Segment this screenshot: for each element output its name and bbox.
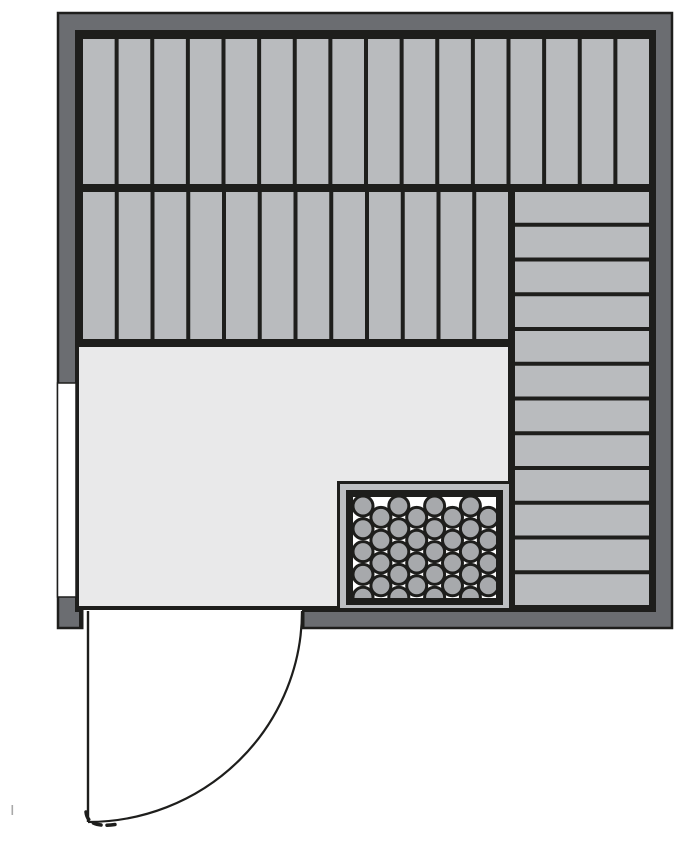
bench-plank xyxy=(511,39,543,184)
stone xyxy=(407,576,427,596)
door-jamb-left xyxy=(79,610,84,628)
bench-plank xyxy=(515,470,649,501)
bench-plank xyxy=(404,39,436,184)
bench-plank xyxy=(226,39,258,184)
bench-plank xyxy=(83,192,115,339)
bench-plank xyxy=(515,540,649,571)
bench-plank xyxy=(515,227,649,258)
bench-plank xyxy=(515,262,649,293)
stone xyxy=(407,553,427,573)
stone xyxy=(371,553,391,573)
stone xyxy=(460,519,480,539)
stone xyxy=(353,542,373,562)
stone xyxy=(353,496,373,516)
bench-plank xyxy=(155,192,187,339)
stone xyxy=(389,496,409,516)
bench-plank xyxy=(515,366,649,397)
stone xyxy=(353,564,373,584)
wall-window xyxy=(58,383,77,597)
stone xyxy=(478,553,498,573)
stone xyxy=(478,507,498,527)
door-opening xyxy=(84,610,303,630)
stone xyxy=(389,519,409,539)
stone xyxy=(407,530,427,550)
stone xyxy=(460,496,480,516)
bench-plank xyxy=(119,39,151,184)
bench-plank xyxy=(515,505,649,536)
stone xyxy=(425,564,445,584)
bench-plank xyxy=(515,401,649,432)
stone xyxy=(353,519,373,539)
bench-plank xyxy=(369,192,401,339)
bench-plank xyxy=(515,435,649,466)
stone xyxy=(478,530,498,550)
bench-plank xyxy=(190,192,222,339)
bench-plank xyxy=(515,574,649,605)
bench-plank xyxy=(515,192,649,223)
bench-plank xyxy=(439,39,471,184)
bench-plank xyxy=(546,39,578,184)
sauna-floor-plan xyxy=(0,0,697,845)
bench-plank xyxy=(368,39,400,184)
floor-plan-drawing xyxy=(0,0,697,845)
bench-plank xyxy=(582,39,614,184)
stone xyxy=(443,576,463,596)
stone xyxy=(460,542,480,562)
stone xyxy=(389,564,409,584)
stone xyxy=(425,496,445,516)
stone xyxy=(478,576,498,596)
stone xyxy=(371,576,391,596)
bench-plank xyxy=(515,296,649,327)
bench-plank xyxy=(475,39,507,184)
stone xyxy=(443,530,463,550)
stone xyxy=(460,564,480,584)
bench-plank xyxy=(405,192,437,339)
bench-plank xyxy=(297,39,329,184)
stone xyxy=(425,519,445,539)
stone xyxy=(371,507,391,527)
bench-plank xyxy=(190,39,222,184)
bench-plank xyxy=(154,39,186,184)
bench-plank xyxy=(262,192,294,339)
stone xyxy=(407,507,427,527)
bench-plank xyxy=(226,192,258,339)
stone xyxy=(425,542,445,562)
stone xyxy=(371,530,391,550)
bench-plank xyxy=(298,192,330,339)
stone xyxy=(443,507,463,527)
bench-plank xyxy=(515,331,649,362)
stone xyxy=(443,553,463,573)
bench-plank xyxy=(119,192,151,339)
bench-plank xyxy=(476,192,508,339)
bench-plank xyxy=(261,39,293,184)
bench-plank xyxy=(441,192,473,339)
bench-plank xyxy=(333,192,365,339)
bench-plank xyxy=(617,39,649,184)
stone xyxy=(389,542,409,562)
stray-mark xyxy=(12,805,14,815)
bench-plank xyxy=(83,39,115,184)
bench-plank xyxy=(332,39,364,184)
